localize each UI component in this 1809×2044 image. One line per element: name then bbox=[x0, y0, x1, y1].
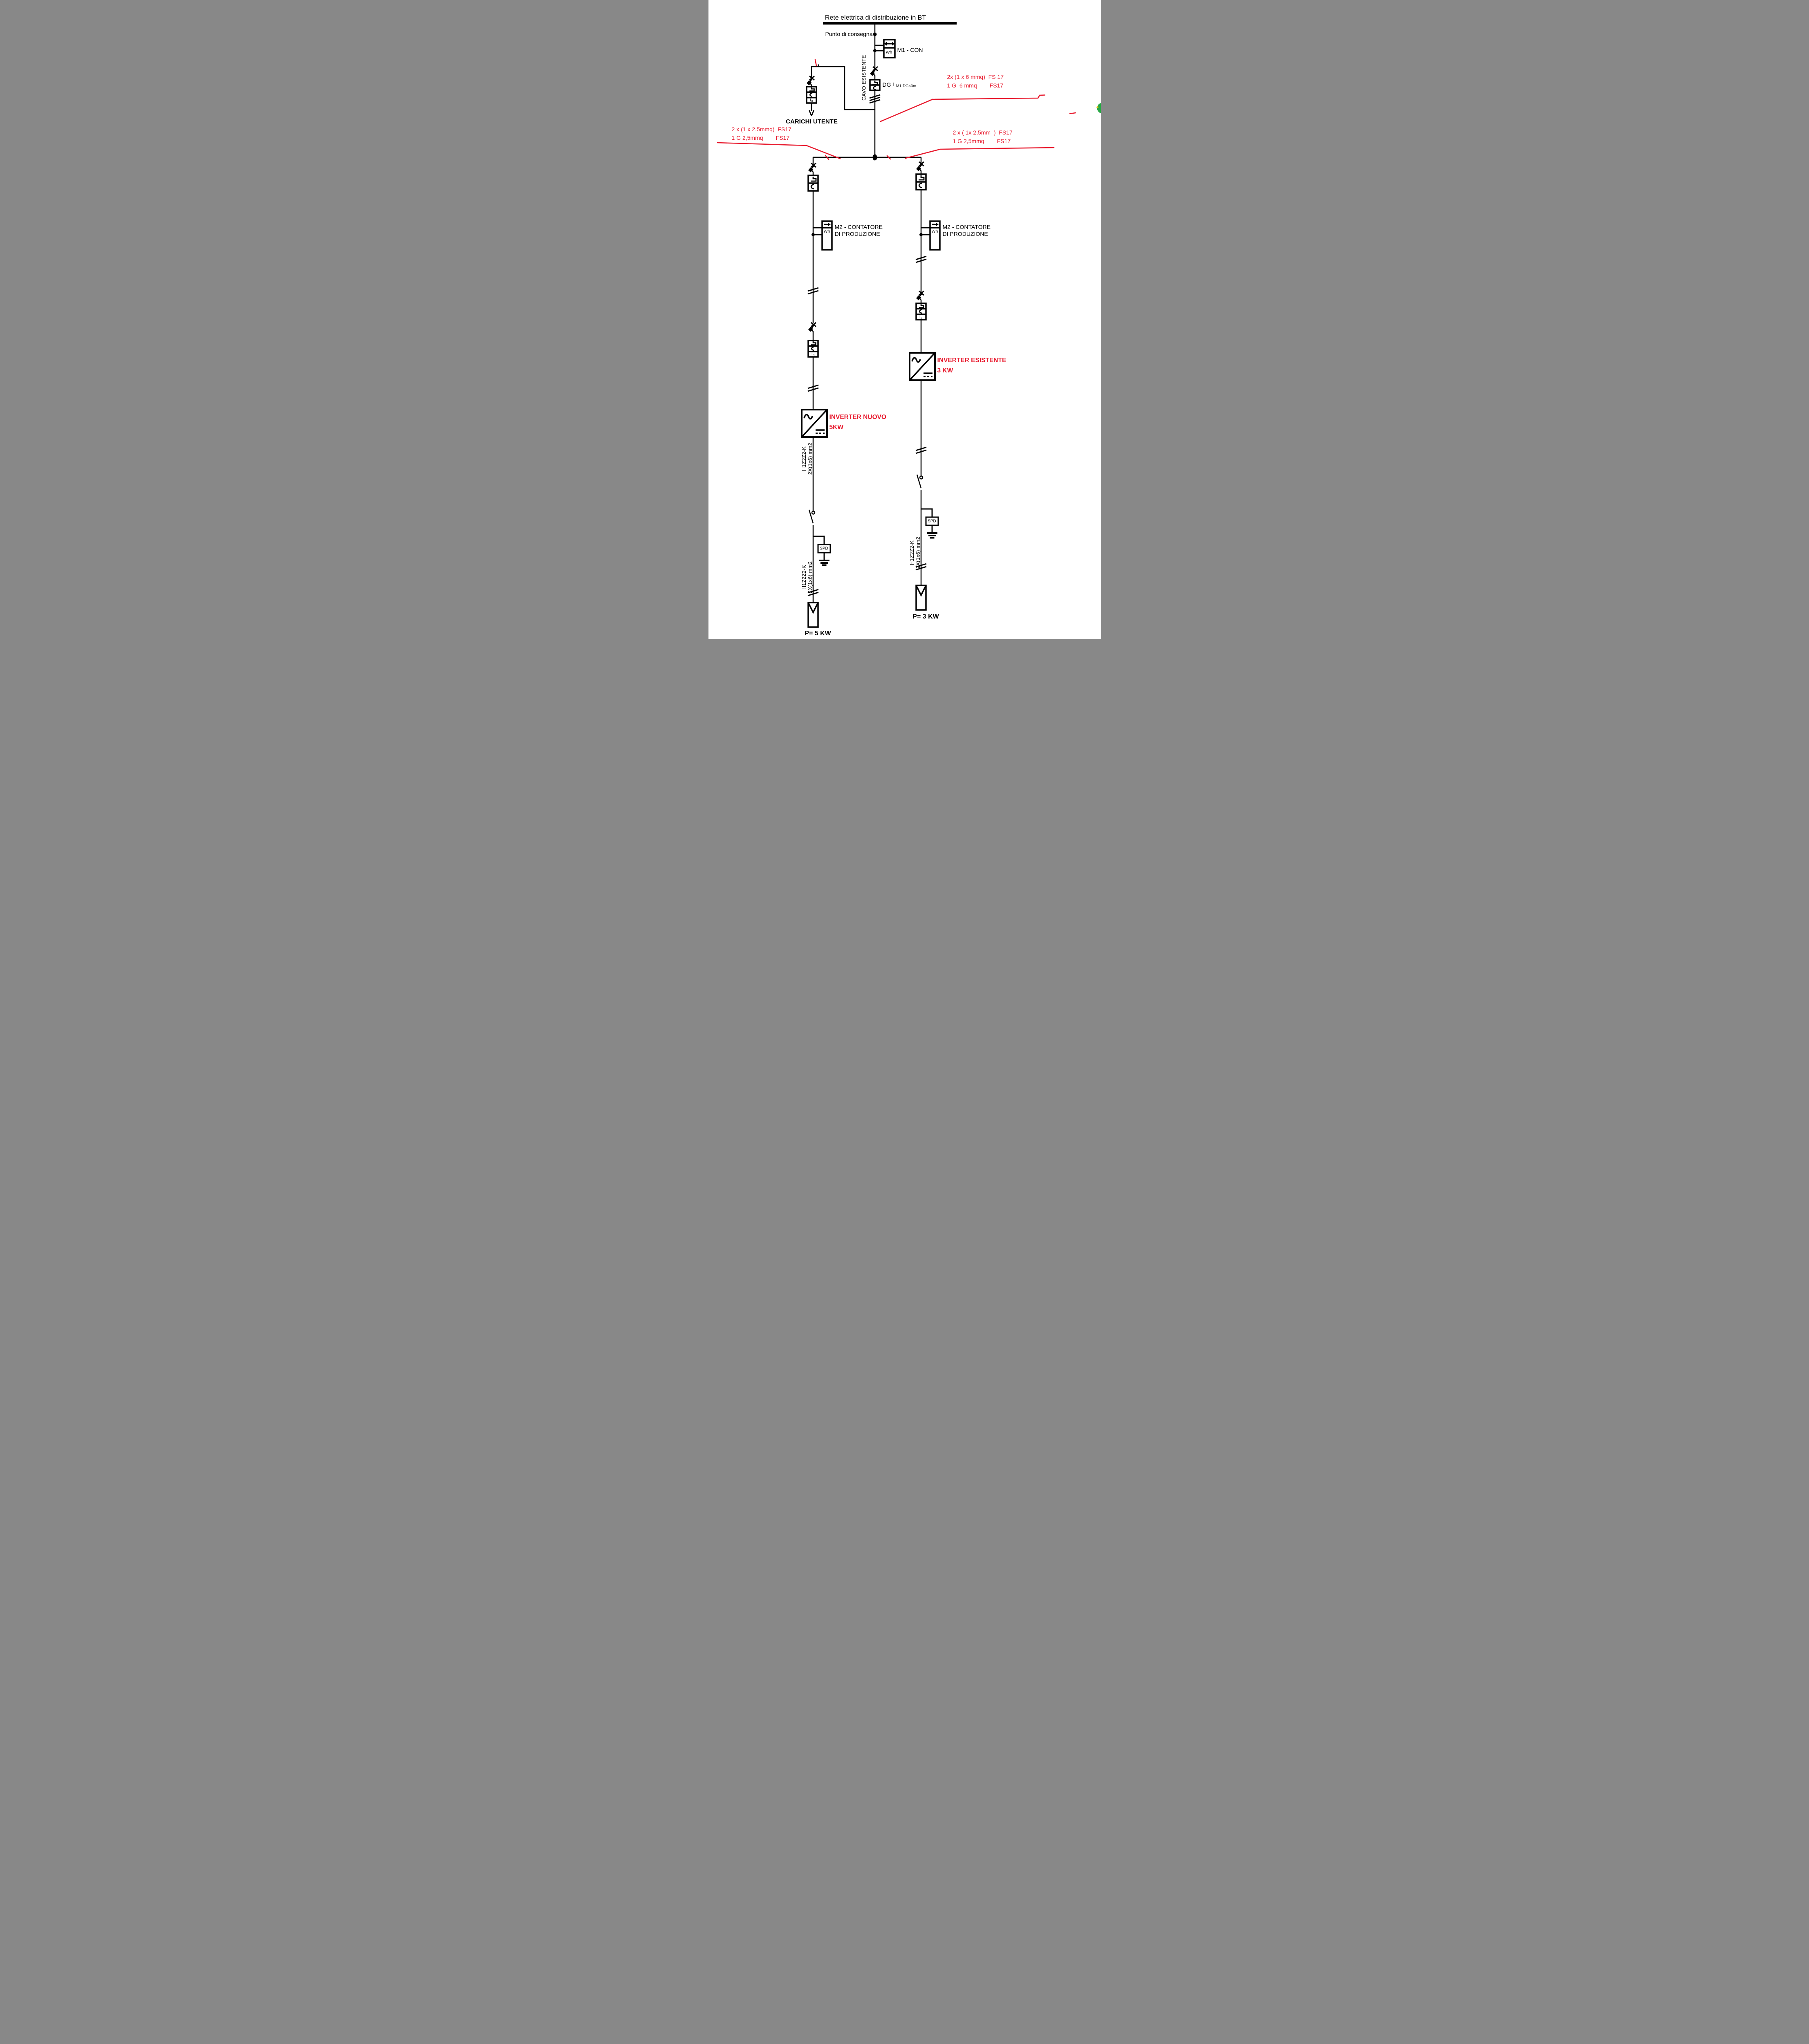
rcd-id-label: Id bbox=[919, 315, 922, 320]
cable-type: H1Z2Z2-K bbox=[801, 443, 807, 475]
cable-type: H1Z2Z2-K bbox=[801, 561, 807, 593]
breaker-symbol bbox=[808, 175, 818, 191]
dc-cable-label: H1Z2Z2-K 2X(1x6) mm2 bbox=[909, 537, 921, 569]
stray-green-mark bbox=[1096, 103, 1101, 114]
cable-mark-icon bbox=[870, 95, 880, 103]
cable-size: 2X(1x6) mm2 bbox=[807, 561, 814, 593]
disconnect-switch-icon bbox=[917, 162, 924, 173]
annotation-left-line1: 2 x (1 x 2,5mmq) FS17 bbox=[732, 126, 791, 132]
cable-size: 2X(1x6) mm2 bbox=[915, 537, 921, 569]
stray-red-tick bbox=[815, 60, 816, 66]
disconnect-switch-icon bbox=[808, 76, 814, 87]
junction-dot bbox=[872, 155, 877, 161]
ground-icon bbox=[819, 560, 829, 565]
delivery-point-dot bbox=[873, 33, 876, 36]
rcd-id-label: Id bbox=[811, 352, 814, 357]
user-loads-label: CARICHI UTENTE bbox=[786, 119, 838, 126]
inverter-new-label-line1: INVERTER NUOVO bbox=[829, 414, 887, 421]
lv-grid-busbar bbox=[823, 22, 957, 25]
m1-meter-unit: Wh bbox=[886, 50, 892, 55]
diagram-canvas bbox=[708, 0, 1101, 639]
dg-breaker-symbol bbox=[870, 80, 880, 90]
inverter-symbol bbox=[802, 410, 827, 437]
dg-length-sub: M1-DG<3m bbox=[896, 84, 916, 88]
delivery-point-label: Punto di consegna bbox=[825, 31, 873, 37]
annotation-right-line2: 1 G 2,5mmq FS17 bbox=[953, 138, 1011, 144]
pv-power-label-right: P= 3 KW bbox=[912, 613, 939, 621]
dg-length-main: L bbox=[893, 81, 896, 87]
inverter-symbol bbox=[910, 353, 935, 380]
dg-length-label: LM1-DG<3m bbox=[893, 82, 917, 87]
disconnect-switch-icon bbox=[871, 67, 878, 78]
m2-meter-symbol bbox=[811, 221, 832, 250]
pv-generator-symbol bbox=[916, 585, 926, 610]
annotation-top-right-line1: 2x (1 x 6 mmq) FS 17 bbox=[947, 74, 1004, 80]
m2-meter-label-line1: M2 - CONTATORE bbox=[835, 224, 883, 230]
m2-meter-unit: Wh bbox=[824, 229, 830, 234]
dg-label: DG bbox=[883, 82, 891, 88]
annotation-leader-lines bbox=[717, 60, 1076, 159]
m2-meter-label-line2: DI PRODUZIONE bbox=[835, 231, 880, 237]
cable-type: H1Z2Z2-K bbox=[909, 537, 915, 569]
cable-size: 2X(1x6) mm2 bbox=[807, 443, 814, 475]
inverter-existing-label-line2: 3 KW bbox=[937, 367, 953, 374]
breaker-symbol bbox=[916, 174, 926, 190]
dc-switch-icon bbox=[917, 475, 923, 488]
ground-icon bbox=[927, 533, 937, 538]
inverter-existing-label-line1: INVERTER ESISTENTE bbox=[937, 357, 1006, 364]
existing-cable-label: CAVO ESISTENTE bbox=[861, 55, 867, 101]
pv-generator-symbol bbox=[808, 603, 818, 627]
disconnect-switch-icon bbox=[809, 163, 816, 175]
disconnect-switch-icon bbox=[917, 291, 924, 303]
m2-meter-unit: Wh bbox=[932, 229, 938, 234]
dc-switch-icon bbox=[809, 510, 815, 523]
pv-power-label-left: P= 5 KW bbox=[805, 630, 831, 637]
dc-cable-label-upper: H1Z2Z2-K 2X(1x6) mm2 bbox=[801, 443, 814, 475]
id-d: d bbox=[811, 99, 813, 103]
single-line-diagram-page: Rete elettrica di distribuzione in BT Pu… bbox=[708, 0, 1101, 639]
annotation-right-line1: 2 x ( 1x 2,5mm ) FS17 bbox=[953, 130, 1013, 136]
user-loads-arrow bbox=[809, 103, 814, 116]
inverter-new-label-line2: 5KW bbox=[829, 424, 843, 431]
m2-meter-symbol bbox=[919, 221, 940, 250]
grid-title: Rete elettrica di distribuzione in BT bbox=[825, 14, 926, 22]
m1-meter-label: M1 - CON bbox=[897, 47, 923, 53]
spd-label: SPD bbox=[928, 519, 936, 524]
dc-cable-label-lower: H1Z2Z2-K 2X(1x6) mm2 bbox=[801, 561, 814, 593]
id-d: d bbox=[813, 353, 814, 357]
rcd-id-label: Id bbox=[810, 98, 813, 103]
annotation-left-line2: 1 G 2,5mmq FS17 bbox=[732, 135, 790, 141]
annotation-top-right-line2: 1 G 6 mmq FS17 bbox=[947, 83, 1004, 89]
spd-label: SPD bbox=[820, 547, 828, 551]
id-d: d bbox=[921, 316, 922, 320]
m2-meter-label-line2: DI PRODUZIONE bbox=[943, 231, 988, 237]
disconnect-switch-icon bbox=[809, 323, 816, 334]
m2-meter-label-line1: M2 - CONTATORE bbox=[943, 224, 991, 230]
